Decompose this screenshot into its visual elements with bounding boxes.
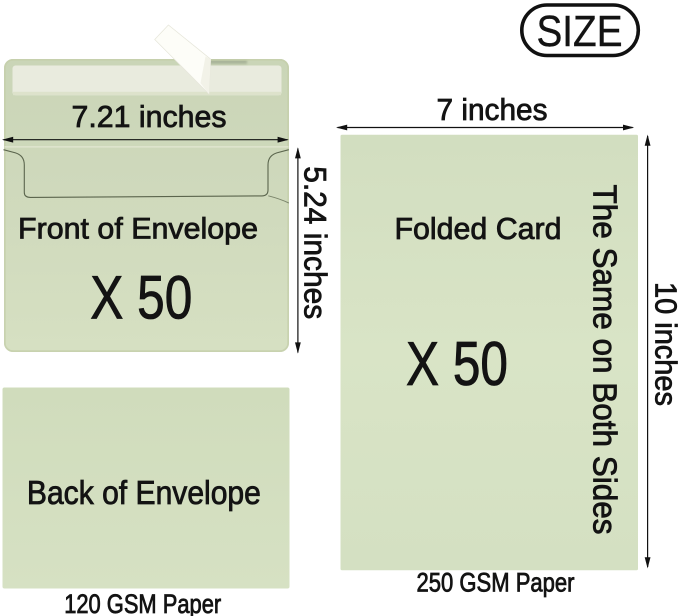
svg-text:Folded Card: Folded Card	[395, 211, 562, 246]
svg-text:10 inches: 10 inches	[648, 282, 679, 406]
svg-text:120 GSM Paper: 120 GSM Paper	[64, 589, 221, 616]
svg-text:Front of Envelope: Front of Envelope	[18, 213, 258, 246]
svg-text:Back of Envelope: Back of Envelope	[27, 474, 261, 511]
svg-text:7.21 inches: 7.21 inches	[72, 99, 227, 134]
svg-text:7 inches: 7 inches	[437, 92, 548, 127]
svg-text:5.24 inches: 5.24 inches	[298, 166, 334, 319]
svg-text:X 50: X 50	[90, 264, 192, 332]
svg-text:The Same on Both Sides: The Same on Both Sides	[586, 185, 623, 535]
svg-text:X 50: X 50	[406, 330, 508, 399]
svg-text:250 GSM Paper: 250 GSM Paper	[417, 568, 575, 598]
svg-text:SIZE: SIZE	[537, 7, 623, 56]
